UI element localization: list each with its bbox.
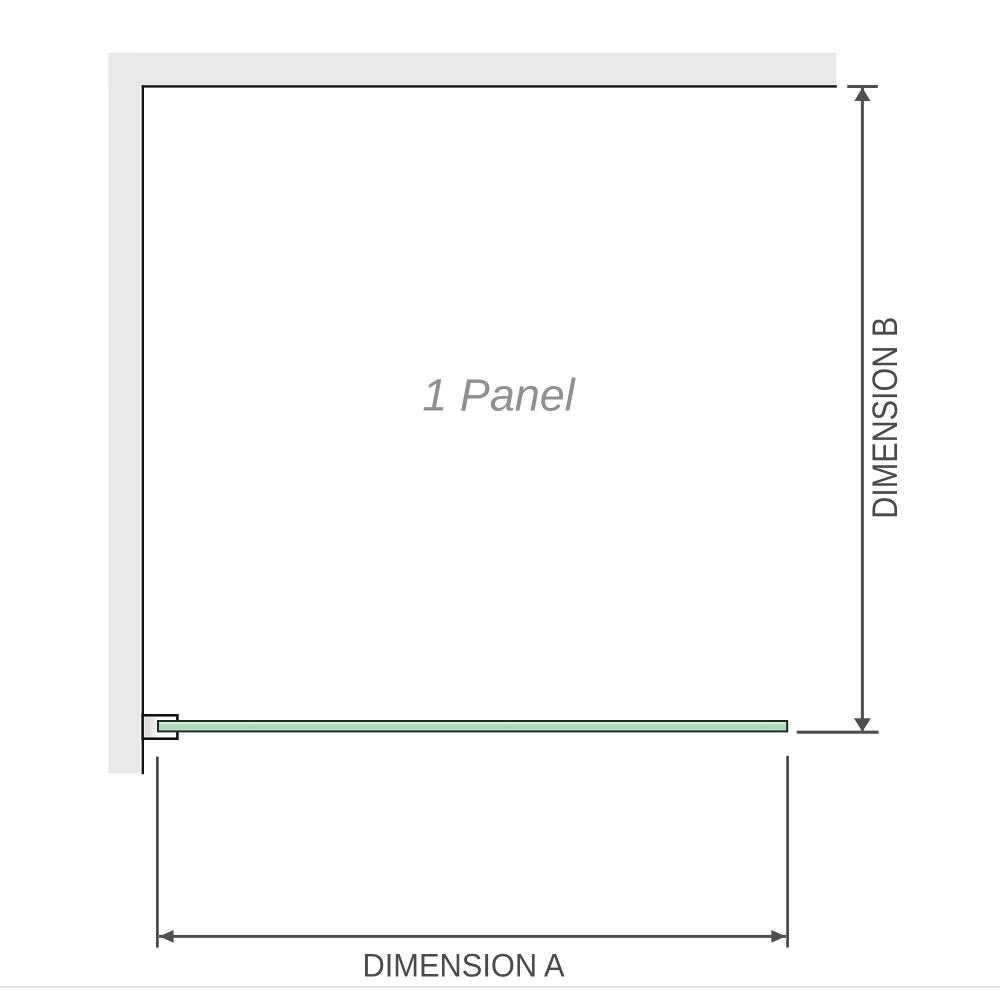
svg-text:DIMENSION A: DIMENSION A [363,948,566,984]
svg-text:DIMENSION B: DIMENSION B [866,317,905,519]
svg-text:1 Panel: 1 Panel [422,370,577,421]
